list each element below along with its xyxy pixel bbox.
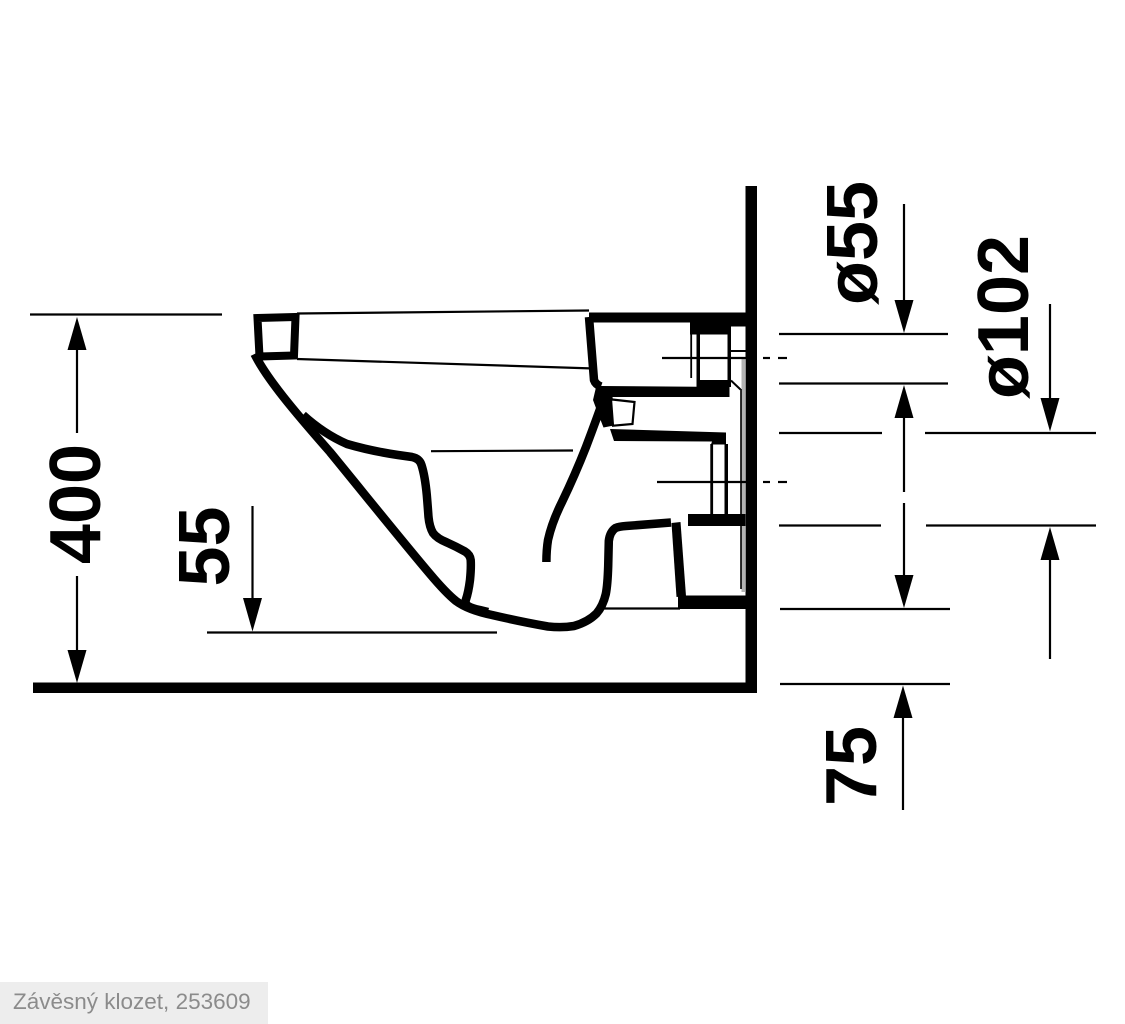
svg-text:55: 55 [165, 506, 245, 586]
svg-text:400: 400 [36, 444, 116, 564]
svg-text:Závěsný klozet, 253609: Závěsný klozet, 253609 [13, 989, 251, 1014]
svg-text:ø55: ø55 [813, 181, 893, 305]
svg-text:ø102: ø102 [964, 235, 1044, 399]
svg-text:75: 75 [812, 726, 892, 806]
